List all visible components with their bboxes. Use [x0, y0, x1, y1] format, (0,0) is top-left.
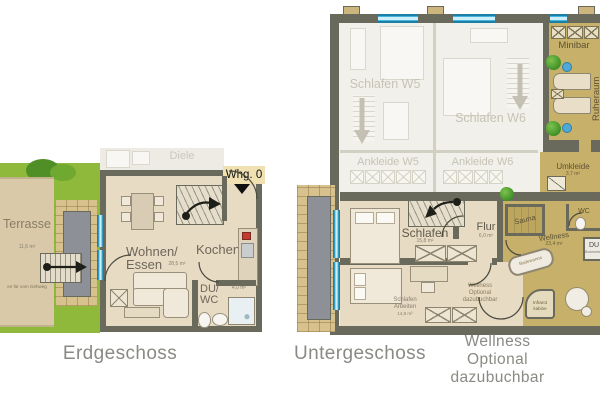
wellness-opt-note2: Optional	[445, 290, 515, 296]
floor-shower: DU Bodenebene	[583, 237, 600, 261]
badewanne-label: Badewanne	[512, 254, 550, 269]
sauna-label: Sauna	[509, 212, 540, 227]
ankleide-w5-label: Ankleide W5	[348, 157, 428, 169]
pillow	[354, 273, 366, 286]
plant-icon	[546, 121, 561, 136]
lamp-icon	[562, 62, 572, 72]
wardrobe-faded	[489, 170, 503, 184]
entry-arrow-icon	[234, 184, 250, 194]
sauna-cabin: Sauna	[505, 204, 545, 236]
dining-chair	[121, 212, 131, 222]
arbeiten-label2: Arbeiten	[383, 304, 427, 310]
wardrobe	[425, 307, 451, 323]
pillow	[355, 212, 374, 224]
infrarot-label2: kabine	[528, 307, 552, 312]
ruheraum-label: Ruheraum	[592, 68, 600, 130]
untergeschoss-caption: Untergeschoss	[285, 344, 435, 364]
wardrobe-faded	[350, 170, 364, 184]
arbeiten-label: Schlafen	[383, 297, 427, 303]
faded-fixture	[106, 150, 130, 168]
faded-wall	[433, 23, 436, 192]
bed-faded	[380, 26, 424, 80]
faded-fixture	[132, 151, 150, 165]
wellness-opt-note3: dazubuchbar	[445, 297, 515, 303]
sink-icon	[241, 243, 254, 258]
ug-stairs	[408, 200, 465, 227]
terrace-door-window	[97, 250, 104, 280]
wardrobe-faded	[396, 170, 410, 184]
pillow	[376, 212, 395, 224]
desk-chair	[421, 282, 435, 293]
minibar-cabinet	[584, 26, 599, 39]
terrasse-area-label: 11,6 m²	[4, 245, 50, 250]
du-area-label: 4,0 m²	[228, 286, 250, 291]
wardrobe-faded	[412, 170, 426, 184]
door-opening	[579, 140, 591, 152]
washbasin-icon	[212, 313, 228, 326]
pillow	[354, 287, 366, 300]
wardrobe	[447, 245, 478, 262]
wellness-opt-note1: Wellness	[445, 283, 515, 289]
wellness-caption-line2: Optional	[425, 352, 570, 368]
shower-icon	[228, 297, 255, 325]
ankleide-w6-label: Ankleide W6	[440, 157, 525, 169]
schlafen-w5-label: Schlafen W5	[345, 78, 425, 91]
schlafen-area-label: 15,8 m²	[408, 239, 442, 244]
wc-wall	[566, 204, 569, 231]
untergeschoss-plan: Schlafen W5 Schlafen W6 Ankleide W5 Ankl…	[295, 0, 600, 340]
erdgeschoss-caption: Erdgeschoss	[30, 344, 210, 364]
arbeiten-area-label: 14,9 m²	[383, 312, 427, 317]
bath-wall	[192, 280, 198, 332]
bed	[350, 208, 400, 264]
wall-stub	[222, 176, 227, 221]
sideboard	[124, 307, 160, 318]
desk	[410, 266, 448, 282]
terrasse-note: en für vorn Gehweg	[0, 285, 54, 290]
terrasse-label: Terrasse	[0, 218, 54, 231]
side-table	[551, 89, 564, 99]
faded-wall	[340, 150, 538, 153]
stairs-faded	[353, 95, 375, 141]
armchair	[163, 288, 189, 318]
minibar-cabinet	[551, 26, 566, 39]
stool-icon	[581, 306, 592, 317]
lounger	[553, 97, 591, 114]
wardrobe-faded	[365, 170, 379, 184]
door-leaf-icon	[547, 176, 566, 191]
wellness-area-label: 23,4 m²	[539, 242, 569, 247]
du-label: DU	[586, 242, 600, 249]
sofa-faded	[383, 102, 409, 140]
window	[453, 14, 495, 23]
schlafen-w6-label: Schlafen W6	[443, 112, 538, 125]
flur-label: Flur	[471, 222, 501, 234]
wardrobe-faded	[458, 170, 472, 184]
wall	[340, 192, 600, 201]
dining-chair	[154, 196, 164, 206]
minibar-label: Minibar	[549, 41, 599, 51]
window	[550, 14, 567, 23]
window	[333, 210, 340, 258]
window	[333, 262, 340, 310]
wellness-caption-line3: dazubuchbar	[425, 370, 570, 386]
wardrobe-faded	[350, 28, 366, 70]
wc-label: WC	[200, 295, 226, 307]
wardrobe-faded	[474, 170, 488, 184]
dining-table	[131, 193, 154, 230]
essen-label: Essen	[126, 258, 166, 272]
floorplan-image: Terrasse 11,6 m² en für vorn Gehweg Diel…	[0, 0, 600, 400]
infrarot-label: Infrarot	[528, 301, 552, 306]
toilet-icon	[198, 312, 211, 328]
lounger	[553, 73, 591, 90]
infrared-cabin: Infrarot kabine	[525, 289, 555, 319]
minibar-counter	[551, 26, 599, 39]
stairs-faded	[507, 58, 529, 108]
du-sub-label: Bodenebene	[585, 251, 600, 255]
wellness-caption-line1: Wellness	[425, 334, 570, 350]
erdgeschoss-plan: Terrasse 11,6 m² en für vorn Gehweg Diel…	[0, 145, 266, 340]
toilet-icon	[575, 217, 586, 230]
wardrobe	[110, 289, 128, 307]
plant-icon	[500, 187, 514, 201]
light-well	[307, 196, 331, 320]
wardrobe-faded	[381, 170, 395, 184]
terrace-stairs	[40, 253, 82, 283]
wardrobe-row	[425, 307, 477, 323]
kochen-label: Kochen	[192, 243, 244, 257]
wc-label: WC	[575, 208, 593, 215]
wardrobe-row-faded	[443, 170, 503, 184]
eg-stairs	[176, 185, 224, 225]
lamp-icon	[562, 123, 572, 133]
wardrobe-row-faded	[350, 170, 426, 184]
wardrobe	[452, 307, 478, 323]
dining-chair	[154, 212, 164, 222]
dining-chair	[121, 196, 131, 206]
stove-icon	[242, 232, 251, 240]
window	[378, 14, 418, 23]
wardrobe-row	[415, 245, 477, 262]
dresser-faded	[470, 28, 508, 43]
terrace-door-window	[97, 215, 104, 247]
bed-faded	[443, 58, 491, 116]
minibar-cabinet	[567, 26, 582, 39]
diele-label: Diele	[160, 151, 204, 163]
wardrobe-faded	[443, 170, 457, 184]
terrace-area	[0, 177, 54, 327]
wall	[549, 140, 600, 152]
plant-icon	[546, 55, 561, 70]
wohnen-area-label: 28,5 m²	[164, 262, 190, 267]
wardrobe	[415, 245, 446, 262]
flur-area-label: 6,0 m²	[473, 234, 499, 239]
whg-label: Whg. 0	[223, 166, 265, 184]
